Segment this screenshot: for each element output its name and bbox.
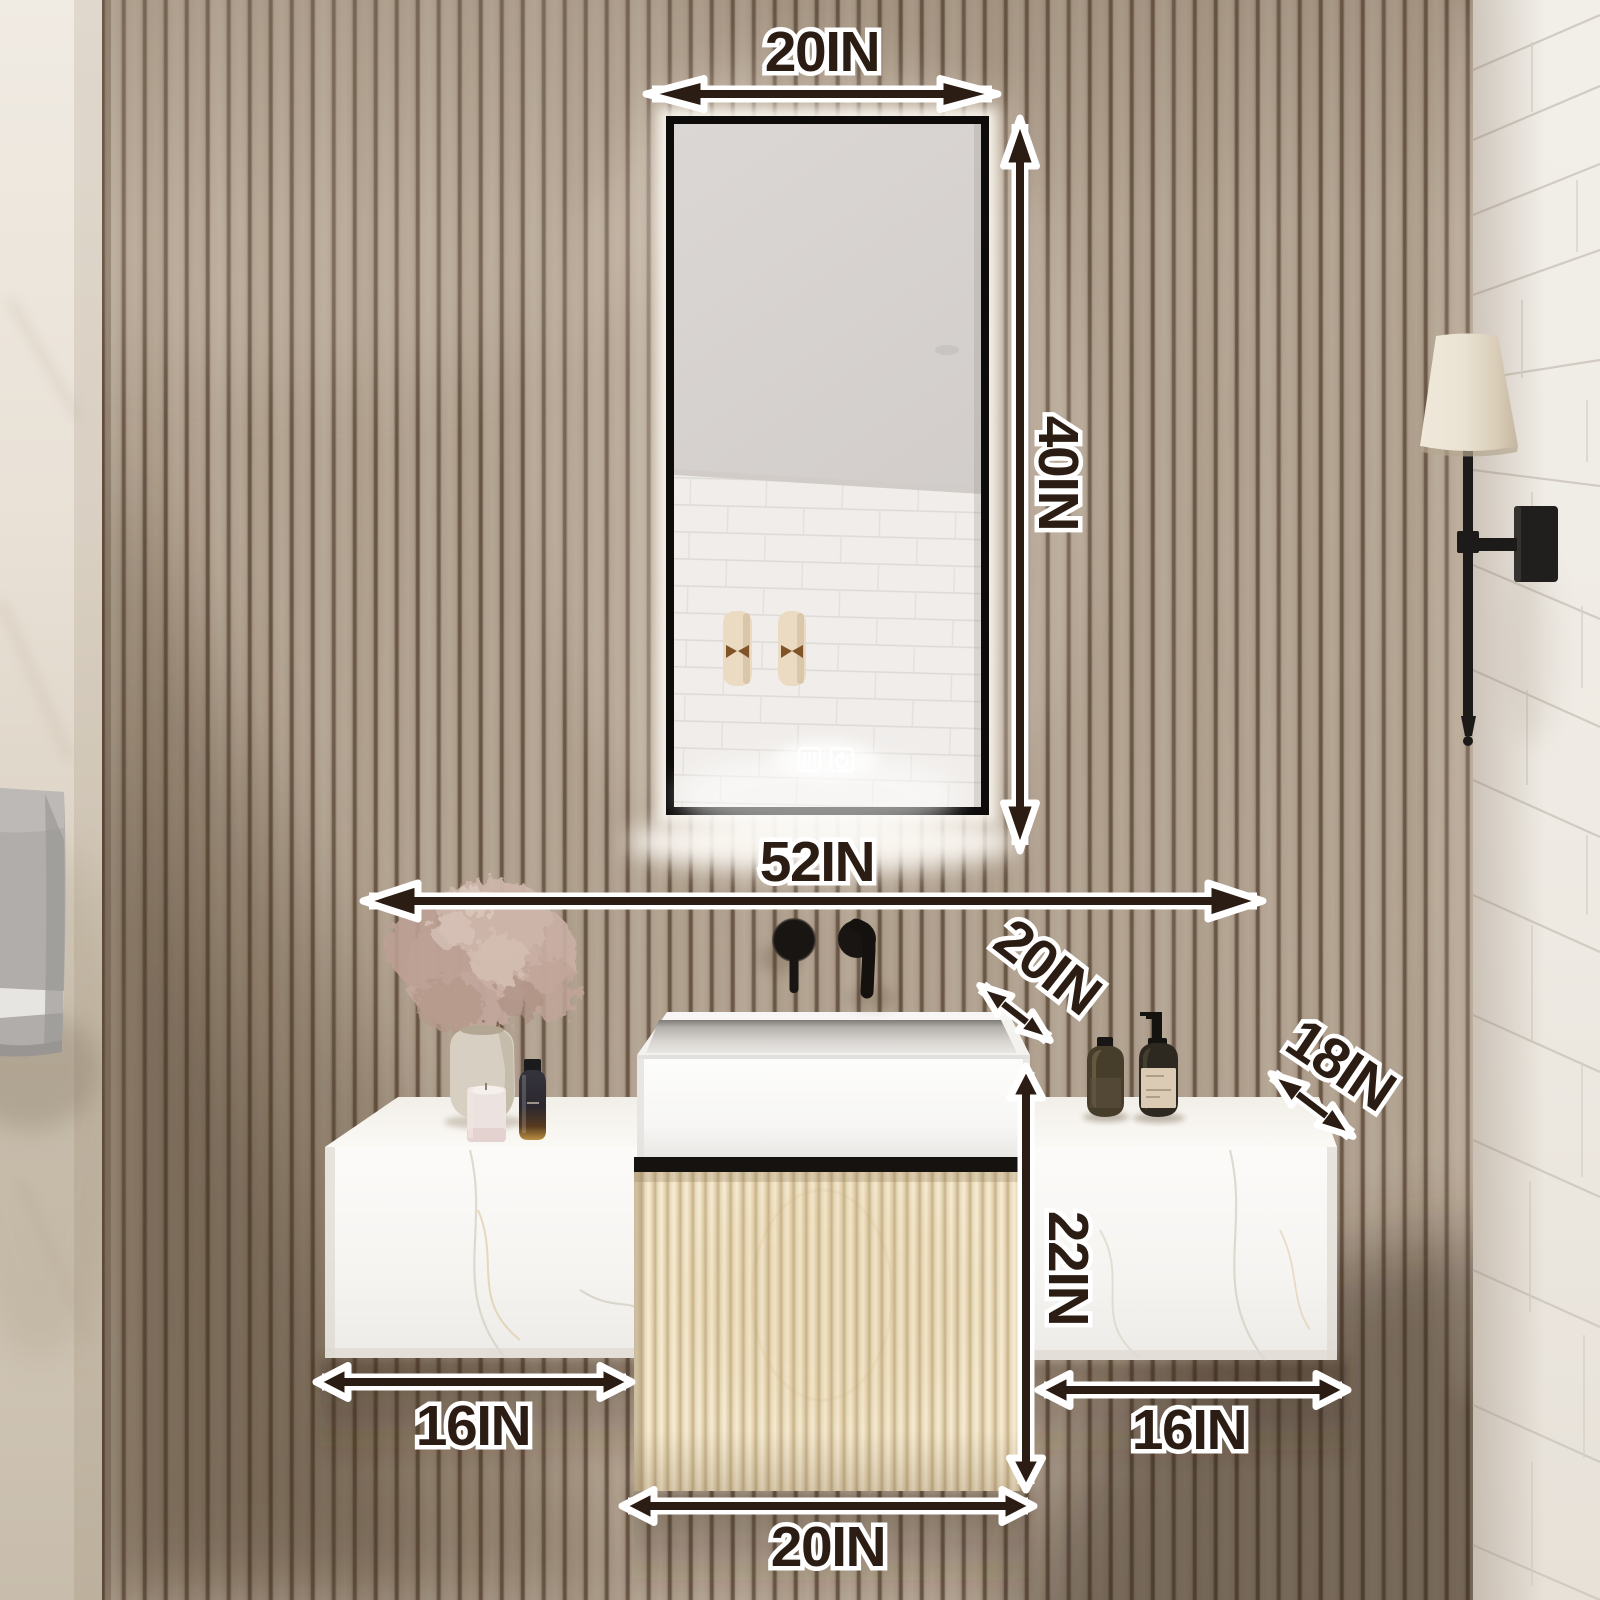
svg-text:16IN: 16IN xyxy=(1132,1398,1246,1462)
svg-text:20IN: 20IN xyxy=(765,20,879,84)
svg-text:16IN: 16IN xyxy=(416,1394,530,1458)
svg-text:40IN: 40IN xyxy=(1026,416,1090,530)
svg-text:20IN: 20IN xyxy=(771,1515,885,1579)
svg-text:22IN: 22IN xyxy=(1036,1211,1100,1325)
svg-text:52IN: 52IN xyxy=(760,830,874,894)
